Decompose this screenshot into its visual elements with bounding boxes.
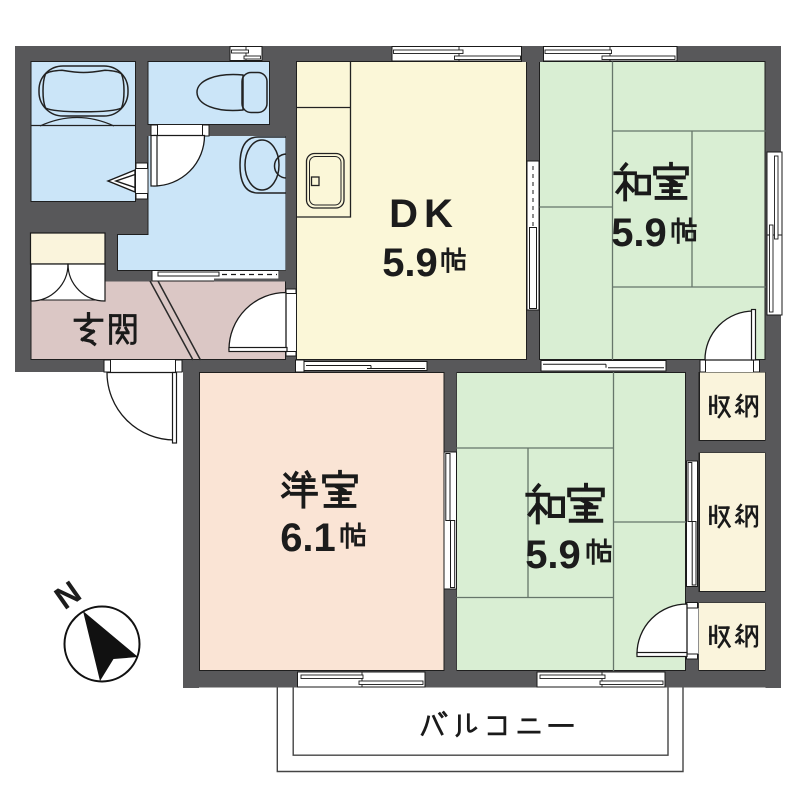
svg-text:5.9: 5.9 xyxy=(525,533,581,577)
svg-text:5.9: 5.9 xyxy=(382,241,438,285)
svg-text:6.1: 6.1 xyxy=(280,516,336,560)
svg-text:5.9: 5.9 xyxy=(611,211,667,255)
svg-text:DK: DK xyxy=(389,192,459,236)
